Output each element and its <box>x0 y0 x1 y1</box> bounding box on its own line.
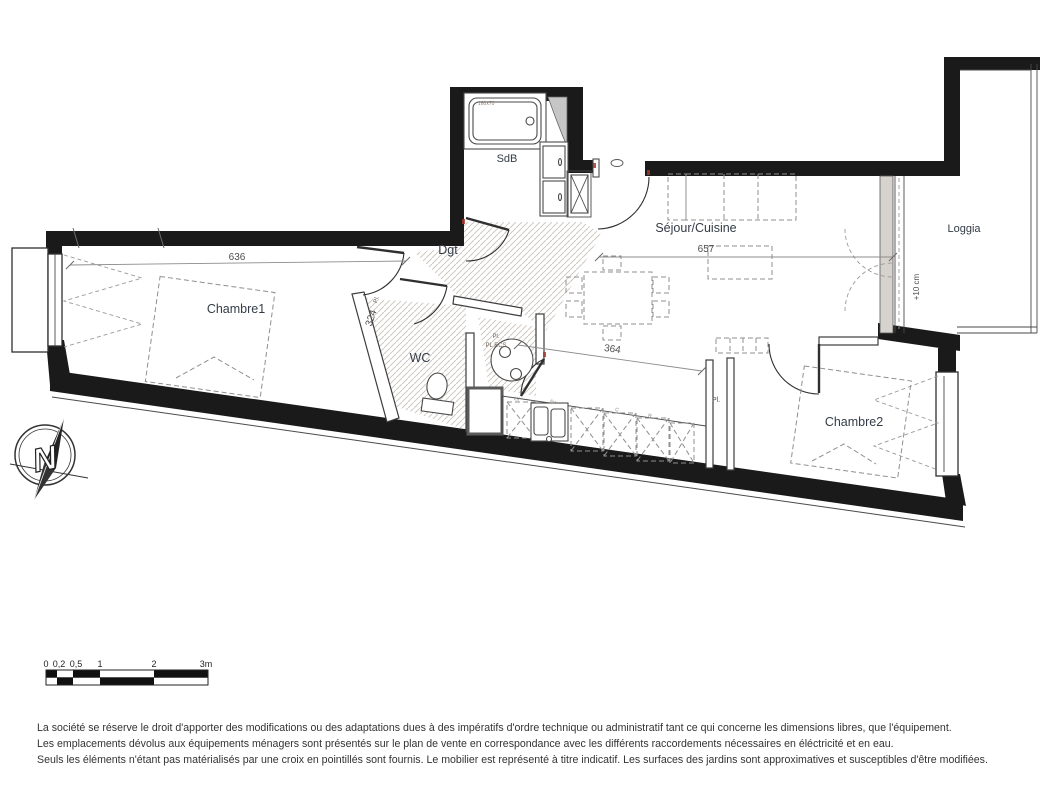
fridge-label: R <box>648 413 653 419</box>
disclaimer-line-1: La société se réserve le droit d'apporte… <box>37 723 1045 735</box>
room-label-sdb: SdB <box>497 153 518 165</box>
labels: SdB Dgt Séjour/Cuisine Loggia Chambre1 W… <box>207 153 982 429</box>
scale-label-05: 0,5 <box>70 659 83 669</box>
scale-label-2: 2 <box>151 659 156 669</box>
technical-shaft <box>567 171 591 217</box>
kitchen-sink <box>531 403 568 442</box>
sofa <box>668 174 796 220</box>
entrance-door <box>593 159 649 229</box>
dim-sejour-width: 657 <box>698 244 715 255</box>
scale-label-0: 0 <box>43 659 48 669</box>
dim-kitchen-width: 364 <box>603 343 621 356</box>
sdb-cabinet <box>540 142 568 216</box>
closet-chambre2-label: Pl. <box>712 397 720 404</box>
dining-set <box>566 256 669 340</box>
chambre2-window <box>874 372 958 476</box>
bathtub-size-label: 160x70 <box>478 101 495 107</box>
chambre1-door <box>357 247 404 295</box>
loggia-bay-window <box>880 176 904 333</box>
legal-disclaimer: La société se réserve le droit d'apporte… <box>37 723 1045 771</box>
closet-shelves-chambre2 <box>716 338 768 353</box>
chambre2-door <box>769 344 819 394</box>
scale-bar: 0 0,2 0,5 1 2 3m <box>43 659 212 685</box>
disclaimer-line-2: Les emplacements dévolus aux équipements… <box>37 739 1045 751</box>
room-label-chambre1: Chambre1 <box>207 302 265 316</box>
room-label-chambre2: Chambre2 <box>825 415 883 429</box>
door-viewer-icon <box>611 160 623 167</box>
bathtub: 160x70 <box>464 93 546 149</box>
loggia-railing <box>957 64 1037 333</box>
room-label-dgt: Dgt <box>438 243 458 257</box>
ecs-closet-label: PL ECS <box>485 343 506 349</box>
cooker-label: C <box>615 407 620 413</box>
dim-chambre1-width: 636 <box>229 252 246 263</box>
loggia-step-label: +10 cm <box>912 273 921 300</box>
bed-chambre1 <box>145 276 275 397</box>
room-label-sejour: Séjour/Cuisine <box>655 221 736 235</box>
scale-label-3m: 3m <box>200 659 213 669</box>
chambre1-window <box>12 248 142 352</box>
room-label-wc: WC <box>410 351 431 365</box>
scale-label-1: 1 <box>97 659 102 669</box>
compass-rose: N <box>10 418 88 500</box>
room-label-loggia: Loggia <box>947 223 981 235</box>
scale-label-02: 0,2 <box>53 659 66 669</box>
coffee-table <box>708 246 772 279</box>
floor-plan: 160x70 <box>0 0 1063 800</box>
laundry-column <box>468 388 502 434</box>
shower-screen <box>548 97 567 146</box>
disclaimer-line-3: Seuls les éléments n'étant pas matériali… <box>37 755 1045 767</box>
ecs-closet-small-label: Pl. <box>492 334 499 340</box>
